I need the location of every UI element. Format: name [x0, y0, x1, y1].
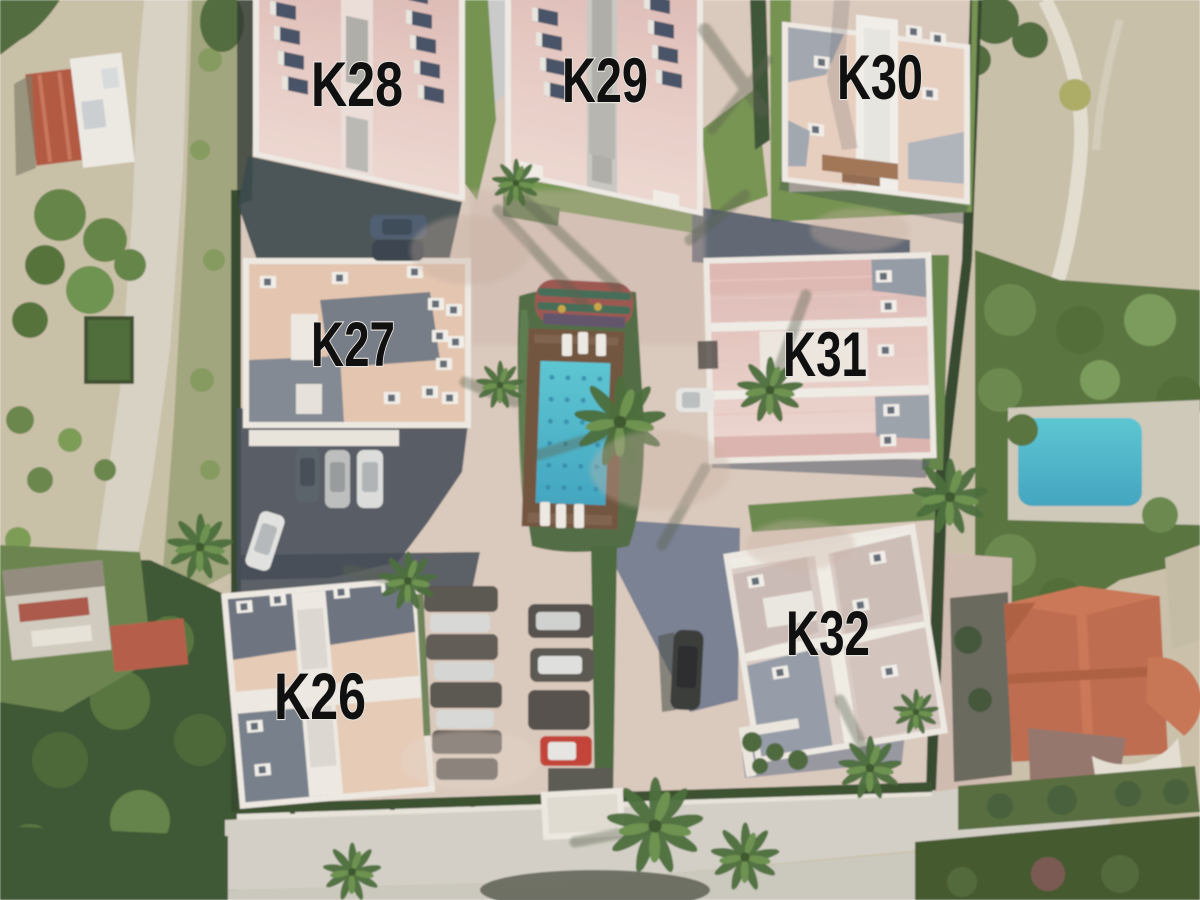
svg-text:K29: K29 — [562, 46, 648, 116]
svg-text:K27: K27 — [311, 310, 395, 380]
svg-text:K26: K26 — [274, 659, 366, 733]
svg-text:K32: K32 — [786, 599, 870, 669]
svg-text:K31: K31 — [783, 320, 867, 390]
svg-text:K28: K28 — [311, 50, 403, 120]
svg-text:K30: K30 — [837, 43, 923, 113]
